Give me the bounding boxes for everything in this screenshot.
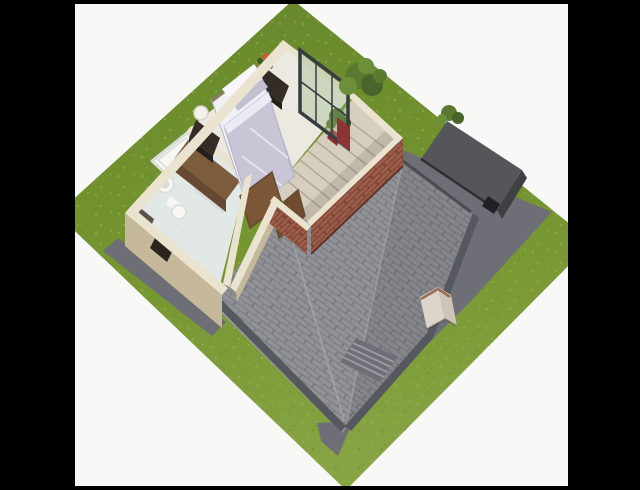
- table-lamp: [194, 106, 208, 120]
- floor-plan-render: [0, 0, 640, 490]
- letterbox-top: [0, 0, 640, 4]
- toilet-bowl: [172, 205, 186, 219]
- render-viewport: [0, 0, 640, 490]
- letterbox-right: [568, 0, 640, 490]
- letterbox-left: [0, 0, 75, 490]
- letterbox-bottom: [0, 486, 640, 490]
